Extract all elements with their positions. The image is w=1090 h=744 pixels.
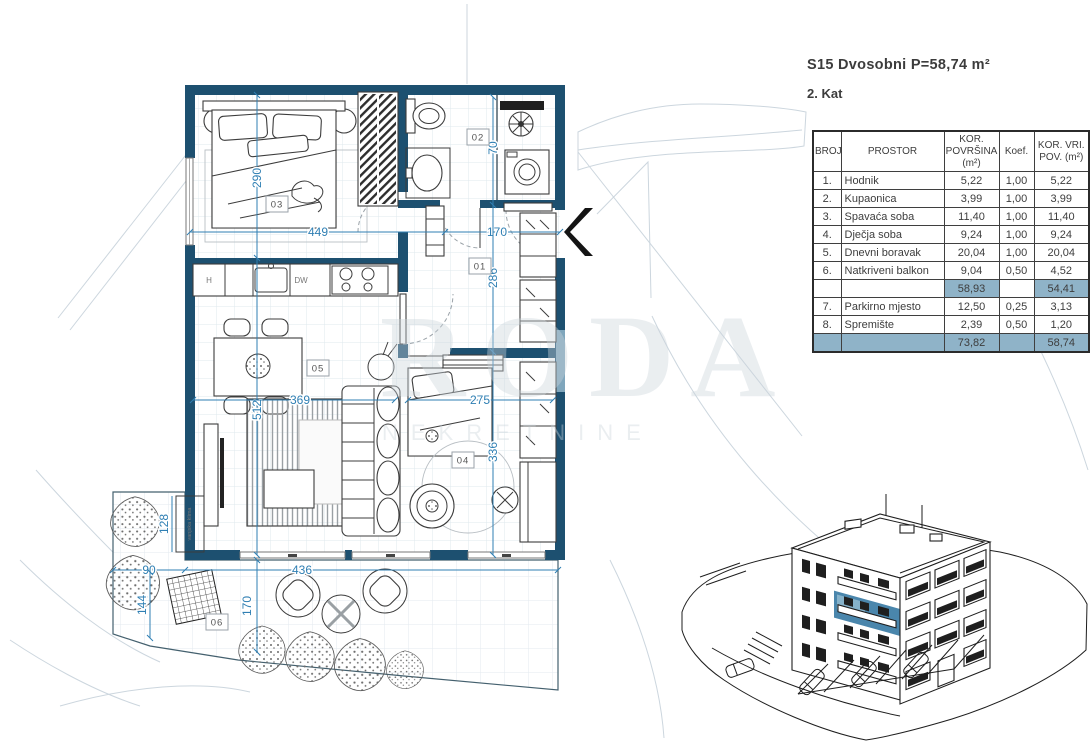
table-row: 6. Natkriveni balkon 9,04 0,50 4,52	[813, 262, 1089, 280]
stairs	[744, 632, 782, 664]
table-cell: 1,00	[999, 244, 1034, 262]
table-cell: Parkirno mjesto	[841, 298, 944, 316]
wardrobe	[358, 92, 398, 206]
table-cell: Kupaonica	[841, 190, 944, 208]
dim-436: 436	[292, 563, 312, 577]
pillow	[218, 113, 268, 140]
dim-512: 512	[250, 400, 264, 420]
table-row: 5. Dnevni boravak 20,04 1,00 20,04	[813, 244, 1089, 262]
table-cell: 11,40	[1034, 208, 1089, 226]
listing-title: S15 Dvosobni P=58,74 m²	[807, 57, 990, 73]
dim-90: 90	[142, 563, 156, 577]
chair	[224, 319, 250, 336]
table-cell	[999, 280, 1034, 298]
table-row: 2. Kupaonica 3,99 1,00 3,99	[813, 190, 1089, 208]
table-cell	[999, 334, 1034, 353]
tv	[220, 438, 224, 508]
total-row: 73,82 58,74	[813, 334, 1089, 353]
table-cell: 0,50	[999, 262, 1034, 280]
hall-closet	[520, 213, 556, 277]
table-cell: 5.	[813, 244, 841, 262]
dim-369: 369	[290, 393, 310, 407]
shower-head	[509, 112, 533, 136]
table-cell: Natkriveni balkon	[841, 262, 944, 280]
table-cell	[841, 280, 944, 298]
watermark-small: NEKRETNINE	[382, 420, 654, 445]
table-plant	[246, 354, 270, 378]
table-cell	[841, 334, 944, 353]
table-cell: 12,50	[944, 298, 999, 316]
table-cell: 4.	[813, 226, 841, 244]
table-cell: 3,13	[1034, 298, 1089, 316]
table-cell: Hodnik	[841, 172, 944, 190]
room-label-03: 03	[266, 196, 288, 212]
table-cell: 0,50	[999, 316, 1034, 334]
header-pov: KOR. VRI. POV. (m²)	[1034, 131, 1089, 172]
room-label-01: 01	[469, 258, 491, 274]
watermark-big: RODA	[380, 291, 791, 422]
table-row: 3. Spavaća soba 11,40 1,00 11,40	[813, 208, 1089, 226]
entrance-door-leaf	[504, 203, 552, 211]
table-cell: 4,52	[1034, 262, 1089, 280]
subtotal-pov: 54,41	[1034, 280, 1089, 298]
shower-bar	[500, 101, 544, 110]
svg-text:03: 03	[271, 200, 284, 211]
table-cell: 3,99	[944, 190, 999, 208]
svg-text:05: 05	[312, 364, 325, 375]
washing-machine	[505, 150, 549, 194]
table-cell: 5,22	[944, 172, 999, 190]
table-cell: 9,04	[944, 262, 999, 280]
room-label-05: 05	[307, 360, 329, 376]
table-row: 1. Hodnik 5,22 1,00 5,22	[813, 172, 1089, 190]
total-povrsina: 73,82	[944, 334, 999, 353]
kitchen-hood-label: H	[206, 276, 212, 285]
table-cell: 7.	[813, 298, 841, 316]
terrace-chair	[363, 569, 407, 613]
entrance-arrow-icon	[564, 208, 593, 256]
table-cell: 6.	[813, 262, 841, 280]
header-broj: BROJ	[813, 131, 841, 172]
dim-144: 144	[135, 595, 149, 615]
room-label-02: 02	[467, 129, 489, 145]
chair	[262, 319, 288, 336]
table-cell: 20,04	[944, 244, 999, 262]
kitchen: H DW	[193, 264, 398, 297]
table-cell: 1,00	[999, 226, 1034, 244]
dim-128: 128	[157, 514, 171, 534]
watermark: RODA NEKRETNINE	[380, 291, 791, 445]
table-cell: 3,99	[1034, 190, 1089, 208]
svg-text:04: 04	[457, 456, 470, 467]
floor-plan-canvas: H DW	[0, 0, 1090, 744]
building-illustration	[682, 494, 1087, 740]
table-cell: 9,24	[944, 226, 999, 244]
table-cell: Dječja soba	[841, 226, 944, 244]
subtotal-povrsina: 58,93	[944, 280, 999, 298]
sink	[412, 155, 442, 191]
table-cell: Spremište	[841, 316, 944, 334]
toilet	[413, 103, 445, 129]
terrace-chair	[276, 573, 320, 617]
table-cell: 9,24	[1034, 226, 1089, 244]
table-cell: 1,00	[999, 190, 1034, 208]
coffee-table	[264, 470, 314, 508]
desk-chair	[492, 487, 518, 513]
desk	[520, 462, 556, 542]
table-cell: Spavaća soba	[841, 208, 944, 226]
table-cell: 1,00	[999, 172, 1034, 190]
header-povrsina: KOR. POVRŠINA (m²)	[944, 131, 999, 172]
ac-outdoor-label: vanjska klima	[187, 507, 193, 541]
table-cell: 3.	[813, 208, 841, 226]
header-prostor: PROSTOR	[841, 131, 944, 172]
table-cell: 1.	[813, 172, 841, 190]
table-cell: 20,04	[1034, 244, 1089, 262]
floor-subtitle: 2. Kat	[807, 86, 842, 101]
dishwasher-label: DW	[294, 276, 308, 285]
header-koef: Koef.	[999, 131, 1034, 172]
dim-170-terrace: 170	[240, 596, 254, 616]
tap	[406, 168, 412, 178]
svg-text:06: 06	[211, 618, 224, 629]
total-pov: 58,74	[1034, 334, 1089, 353]
shoe-cabinet	[426, 206, 444, 256]
table-header-row: BROJ PROSTOR KOR. POVRŠINA (m²) Koef. KO…	[813, 131, 1089, 172]
table-row: 8. Spremište 2,39 0,50 1,20	[813, 316, 1089, 334]
table-cell: 1,00	[999, 208, 1034, 226]
dim-170-top: 170	[487, 225, 507, 239]
dim-449: 449	[308, 225, 328, 239]
table-cell: Dnevni boravak	[841, 244, 944, 262]
table-cell	[813, 280, 841, 298]
tv-console	[204, 424, 218, 526]
subtotal-row: 58,93 54,41	[813, 280, 1089, 298]
table-cell: 5,22	[1034, 172, 1089, 190]
table-row: 4. Dječja soba 9,24 1,00 9,24	[813, 226, 1089, 244]
area-table: BROJ PROSTOR KOR. POVRŠINA (m²) Koef. KO…	[812, 130, 1090, 353]
svg-text:02: 02	[472, 133, 485, 144]
table-cell	[813, 334, 841, 353]
table-cell: 2.	[813, 190, 841, 208]
table-cell: 8.	[813, 316, 841, 334]
table-row: 7. Parkirno mjesto 12,50 0,25 3,13	[813, 298, 1089, 316]
dim-290: 290	[250, 168, 264, 188]
table-cell: 0,25	[999, 298, 1034, 316]
table-cell: 2,39	[944, 316, 999, 334]
room-label-04: 04	[452, 452, 474, 468]
crib	[410, 484, 454, 528]
room-label-06: 06	[206, 614, 228, 630]
table-cell: 11,40	[944, 208, 999, 226]
svg-text:01: 01	[474, 262, 487, 273]
table-cell: 1,20	[1034, 316, 1089, 334]
